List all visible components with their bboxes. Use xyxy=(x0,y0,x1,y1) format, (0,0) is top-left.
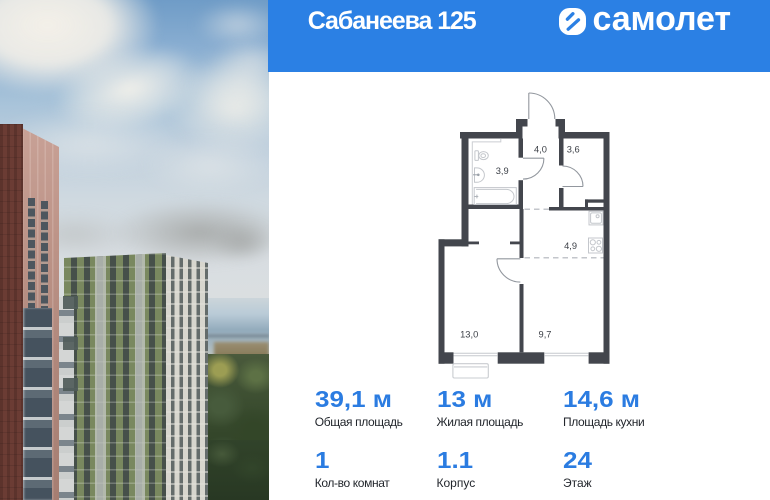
svg-text:9,7: 9,7 xyxy=(539,329,552,339)
svg-text:4,0: 4,0 xyxy=(534,144,547,154)
svg-text:3,9: 3,9 xyxy=(496,166,509,176)
svg-text:3,6: 3,6 xyxy=(567,144,580,154)
svg-text:4,9: 4,9 xyxy=(564,241,577,251)
svg-text:13,0: 13,0 xyxy=(460,329,478,339)
